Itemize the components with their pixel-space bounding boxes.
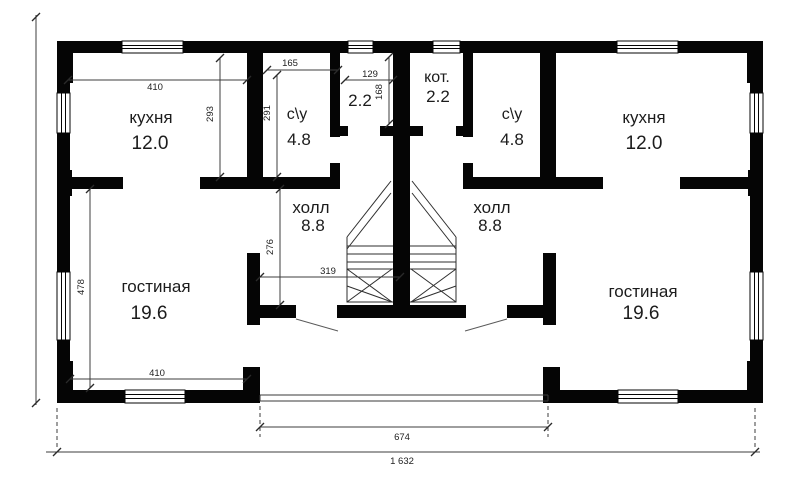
- room-name: холл: [473, 198, 510, 217]
- dim-porch-width: 674: [256, 406, 552, 443]
- wall-top: [183, 41, 348, 53]
- window: [57, 272, 70, 340]
- dim-label: 129: [362, 69, 378, 80]
- wall-hall-bottom-left: [247, 305, 296, 318]
- room-area: 8.8: [301, 216, 325, 235]
- room-area: 8.8: [478, 216, 502, 235]
- staircase-right: [410, 181, 456, 302]
- dim-living-width: 410: [66, 368, 251, 383]
- dim-boiler-depth: 168: [374, 53, 393, 128]
- dim-label: 291: [262, 105, 273, 121]
- room-label-kitchen-left: кухня 12.0: [129, 108, 172, 154]
- room-name: с\у: [502, 106, 522, 123]
- wall-bath-bottom-right: [463, 177, 603, 189]
- wall-boiler-stub: [410, 126, 423, 136]
- room-label-hall-right: холл 8.8: [473, 198, 510, 235]
- dim-label: 410: [147, 82, 163, 93]
- room-label-bath-left: с\у 4.8: [287, 106, 311, 149]
- room-area: 12.0: [132, 133, 169, 154]
- room-label-boiler-right: кот. 2.2: [424, 69, 450, 106]
- window: [618, 390, 678, 403]
- wall-porch-center: [337, 305, 466, 318]
- wall-bath-boiler-left: [330, 53, 340, 137]
- dim-kitchen-depth: 293: [205, 54, 224, 181]
- wall-right: [750, 133, 763, 272]
- room-name: кот.: [424, 69, 450, 86]
- window: [348, 41, 373, 53]
- wall-boiler-stub: [380, 126, 393, 136]
- dim-label: 168: [374, 84, 385, 100]
- wall-bath-boiler-right: [463, 53, 473, 137]
- wall-kitchen-bath-right: [540, 53, 556, 189]
- wall-bottom: [550, 390, 618, 403]
- dim-label: 410: [149, 368, 165, 379]
- room-area: 19.6: [623, 303, 660, 324]
- wall-bath-boiler-right-lower: [463, 163, 473, 189]
- room-area: 2.2: [348, 91, 372, 110]
- dim-total-height: [32, 13, 40, 407]
- wall-boiler-stub: [456, 126, 473, 136]
- corner-pier: [747, 361, 763, 403]
- room-area: 12.0: [626, 133, 663, 154]
- wall-top: [373, 41, 433, 53]
- porch-edge: [260, 395, 548, 401]
- room-name: холл: [292, 198, 329, 217]
- wall-bath-boiler-left-lower: [330, 163, 340, 189]
- window: [617, 41, 678, 53]
- window: [122, 41, 183, 53]
- room-name: гостиная: [121, 277, 190, 296]
- window: [125, 390, 185, 403]
- entry-door-right: [465, 319, 507, 331]
- wall-bath-bottom-left: [200, 177, 340, 189]
- staircase-left: [347, 181, 393, 302]
- dim-label: 1 632: [390, 456, 414, 467]
- room-area: 19.6: [131, 303, 168, 324]
- entry-door-left: [296, 319, 338, 331]
- window: [57, 93, 70, 133]
- room-label-hall-left: холл 8.8: [292, 198, 329, 235]
- dim-label: 276: [265, 239, 276, 255]
- dim-hall-depth: 276: [265, 185, 284, 309]
- window: [433, 41, 460, 53]
- wall-kitchen-bottom-right: [680, 177, 763, 189]
- dim-label: 165: [282, 58, 298, 69]
- wall-boiler-stub: [330, 126, 348, 136]
- corner-pier: [57, 361, 73, 403]
- room-label-living-left: гостиная 19.6: [121, 277, 190, 324]
- wall-left: [57, 133, 70, 272]
- room-name: гостиная: [608, 282, 677, 301]
- corner-pier: [747, 41, 763, 83]
- dim-living-depth: 478: [76, 185, 94, 392]
- dim-label: 293: [205, 106, 216, 122]
- porch-end-block: [543, 367, 560, 403]
- dim-kitchen-width: 410: [64, 76, 251, 93]
- room-area: 4.8: [500, 130, 524, 149]
- window: [750, 93, 763, 133]
- floor-plan-page: 410 293 165 291 129 168: [0, 0, 800, 484]
- room-label-bath-right: с\у 4.8: [500, 106, 524, 149]
- room-area: 2.2: [426, 87, 450, 106]
- floor-plan-drawing: 410 293 165 291 129 168: [0, 0, 800, 484]
- dim-hall-width: 319: [256, 266, 404, 281]
- party-wall: [393, 53, 410, 305]
- room-name: кухня: [129, 108, 172, 127]
- dim-label: 478: [76, 279, 87, 295]
- room-name: кухня: [622, 108, 665, 127]
- room-label-boiler-left: 2.2: [348, 91, 372, 110]
- dim-label: 674: [394, 432, 410, 443]
- window: [750, 272, 763, 340]
- wall-top: [460, 41, 617, 53]
- room-label-kitchen-right: кухня 12.0: [622, 108, 665, 154]
- wall-kitchen-bath-left: [247, 53, 263, 189]
- room-name: с\у: [287, 106, 307, 123]
- wall-kitchen-bottom-left: [57, 177, 123, 189]
- wall-hall-bottom-right: [507, 305, 556, 318]
- door-swings: [296, 319, 507, 331]
- room-area: 4.8: [287, 130, 311, 149]
- room-label-living-right: гостиная 19.6: [608, 282, 677, 324]
- dim-label: 319: [320, 266, 336, 277]
- dim-bath-depth: 291: [262, 71, 281, 181]
- porch-end-block: [243, 367, 260, 403]
